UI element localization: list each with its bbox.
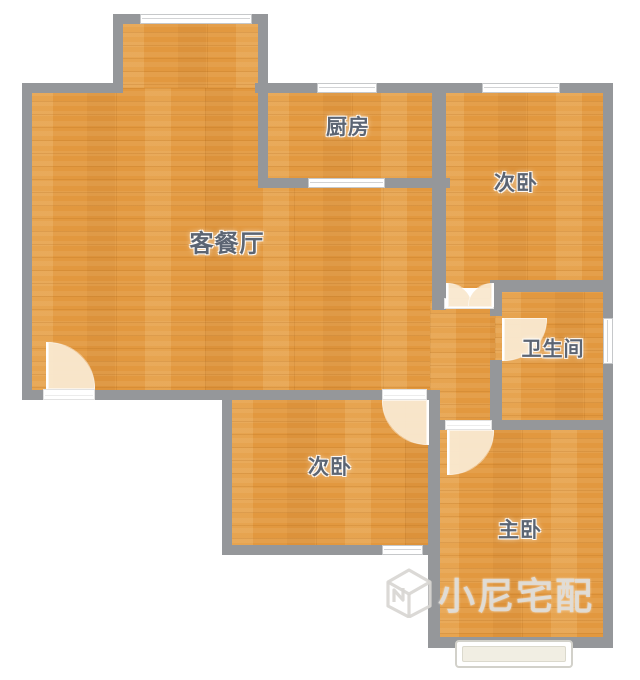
watermark-cube-logo-icon xyxy=(386,568,432,618)
room-label-kitchen: 厨房 xyxy=(326,111,370,141)
window-bedroom-bottom xyxy=(382,545,423,555)
wall-outer-left xyxy=(22,83,32,400)
room-label-bathroom: 卫生间 xyxy=(522,333,585,362)
floor-plan-canvas: 客餐厅 厨房 次卧 卫生间 次卧 主卧 小尼宅配 xyxy=(0,0,640,680)
wall-step-top xyxy=(22,83,123,93)
window-bedroom-top xyxy=(482,83,560,93)
living-room-floor-protrusion xyxy=(118,19,263,99)
room-label-bedroom-top: 次卧 xyxy=(494,167,538,197)
window-kitchen-pass xyxy=(308,178,385,188)
wall-kitchen-left xyxy=(258,14,268,188)
room-label-living-dining: 客餐厅 xyxy=(190,224,265,259)
bay-window-master xyxy=(455,640,573,668)
threshold-master-door xyxy=(445,420,492,430)
watermark-text: 小尼宅配 xyxy=(438,566,594,620)
wall-bathroom-top xyxy=(490,280,613,292)
wall-outer-right xyxy=(603,83,613,648)
room-label-bedroom-bottom: 次卧 xyxy=(308,451,352,481)
window-bathroom-right xyxy=(603,318,613,364)
wall-bedroom-bottom-left xyxy=(222,390,232,555)
wall-protrusion-left xyxy=(113,14,123,93)
watermark: 小尼宅配 xyxy=(386,566,594,620)
room-label-master: 主卧 xyxy=(498,514,542,544)
window-living-top xyxy=(140,14,252,24)
wall-bedroom-top-left xyxy=(432,88,446,310)
threshold-entry-door xyxy=(43,389,95,400)
threshold-bedroom-bottom-door xyxy=(382,389,427,400)
window-kitchen-top xyxy=(317,83,377,93)
